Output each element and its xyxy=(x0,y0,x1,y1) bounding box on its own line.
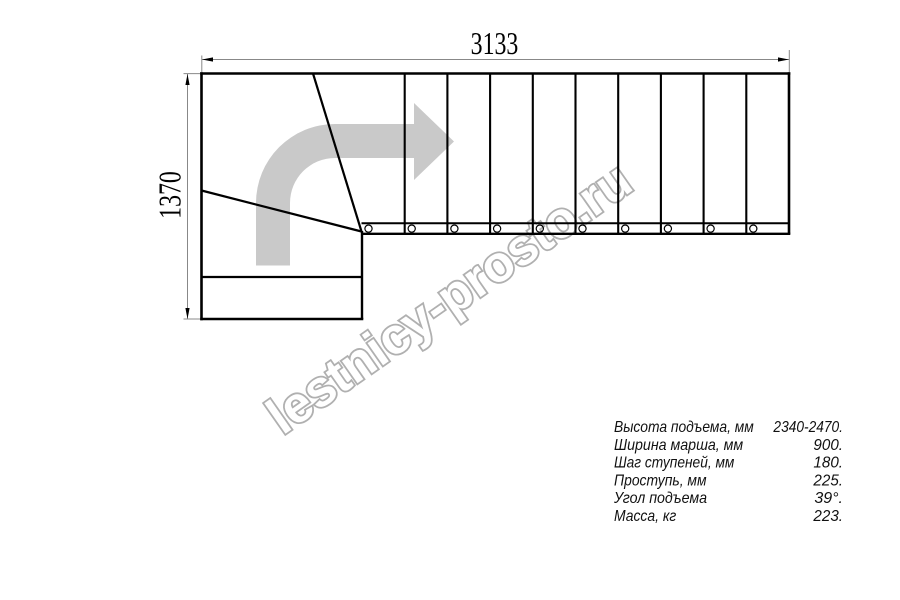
svg-text:180.: 180. xyxy=(813,454,843,471)
svg-text:1370: 1370 xyxy=(153,171,188,219)
svg-text:2340-2470.: 2340-2470. xyxy=(773,418,843,436)
svg-text:Проступь, мм: Проступь, мм xyxy=(614,471,707,489)
svg-text:223.: 223. xyxy=(812,508,843,525)
svg-text:Высота подъема, мм: Высота подъема, мм xyxy=(614,418,754,436)
svg-text:900.: 900. xyxy=(813,436,843,453)
svg-text:Ширина марша, мм: Ширина марша, мм xyxy=(614,436,744,454)
svg-text:225.: 225. xyxy=(812,472,843,489)
svg-text:Масса, кг: Масса, кг xyxy=(614,507,677,525)
svg-text:Шаг ступеней, мм: Шаг ступеней, мм xyxy=(614,454,734,472)
svg-text:Угол подъема: Угол подъема xyxy=(613,489,707,507)
svg-text:3133: 3133 xyxy=(471,27,519,62)
svg-text:39°.: 39°. xyxy=(814,490,843,507)
